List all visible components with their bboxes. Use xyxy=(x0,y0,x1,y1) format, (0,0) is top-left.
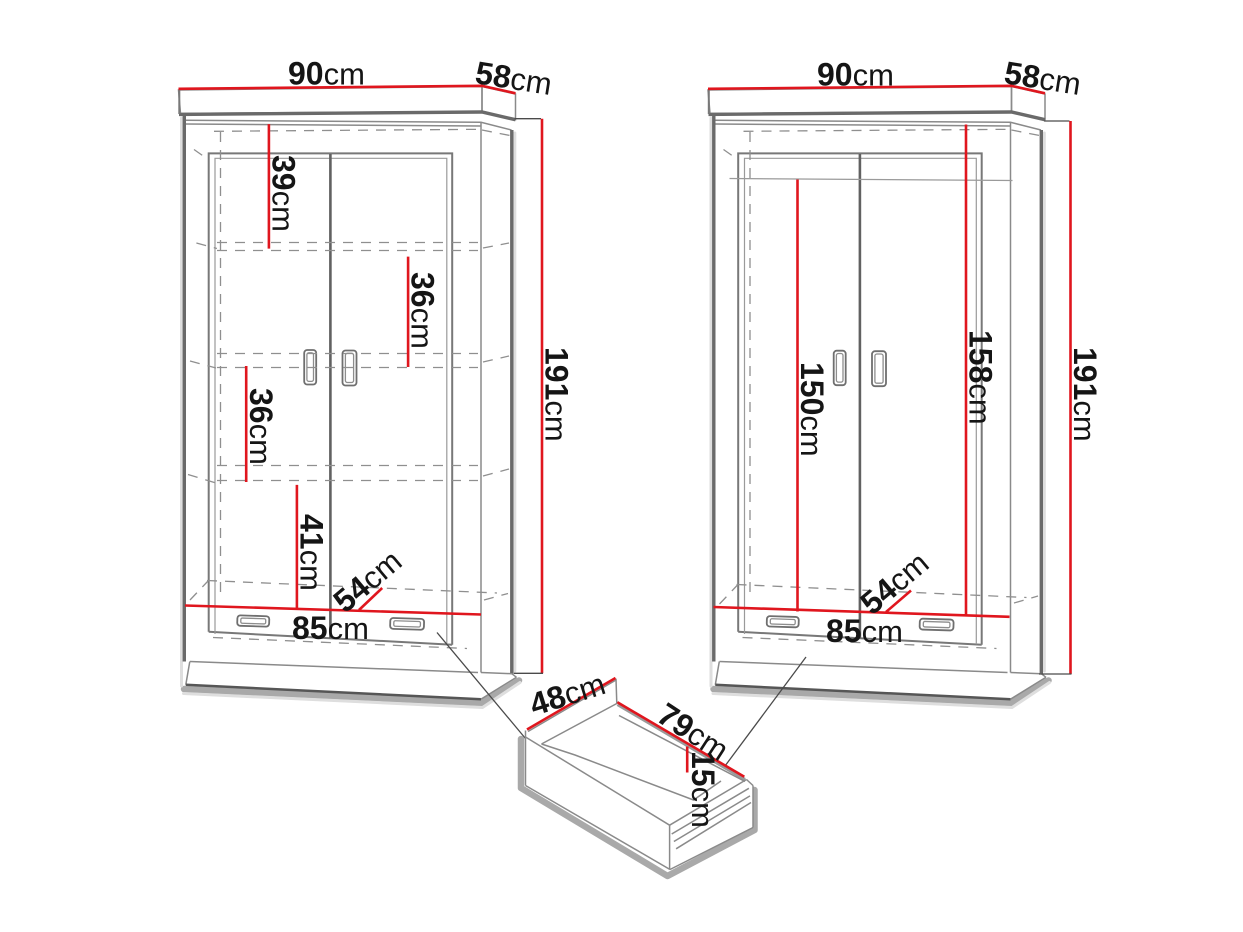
svg-text:90cm: 90cm xyxy=(817,57,894,93)
svg-text:41cm: 41cm xyxy=(294,514,330,591)
svg-text:36cm: 36cm xyxy=(405,272,441,349)
svg-text:85cm: 85cm xyxy=(292,610,369,646)
svg-text:191cm: 191cm xyxy=(539,347,575,442)
svg-text:15cm: 15cm xyxy=(685,751,721,828)
svg-text:39cm: 39cm xyxy=(266,155,302,232)
svg-text:90cm: 90cm xyxy=(288,56,365,92)
svg-text:36cm: 36cm xyxy=(243,388,279,465)
svg-text:85cm: 85cm xyxy=(826,613,903,649)
svg-text:191cm: 191cm xyxy=(1067,347,1103,442)
svg-text:150cm: 150cm xyxy=(794,362,830,457)
svg-text:158cm: 158cm xyxy=(963,330,999,425)
